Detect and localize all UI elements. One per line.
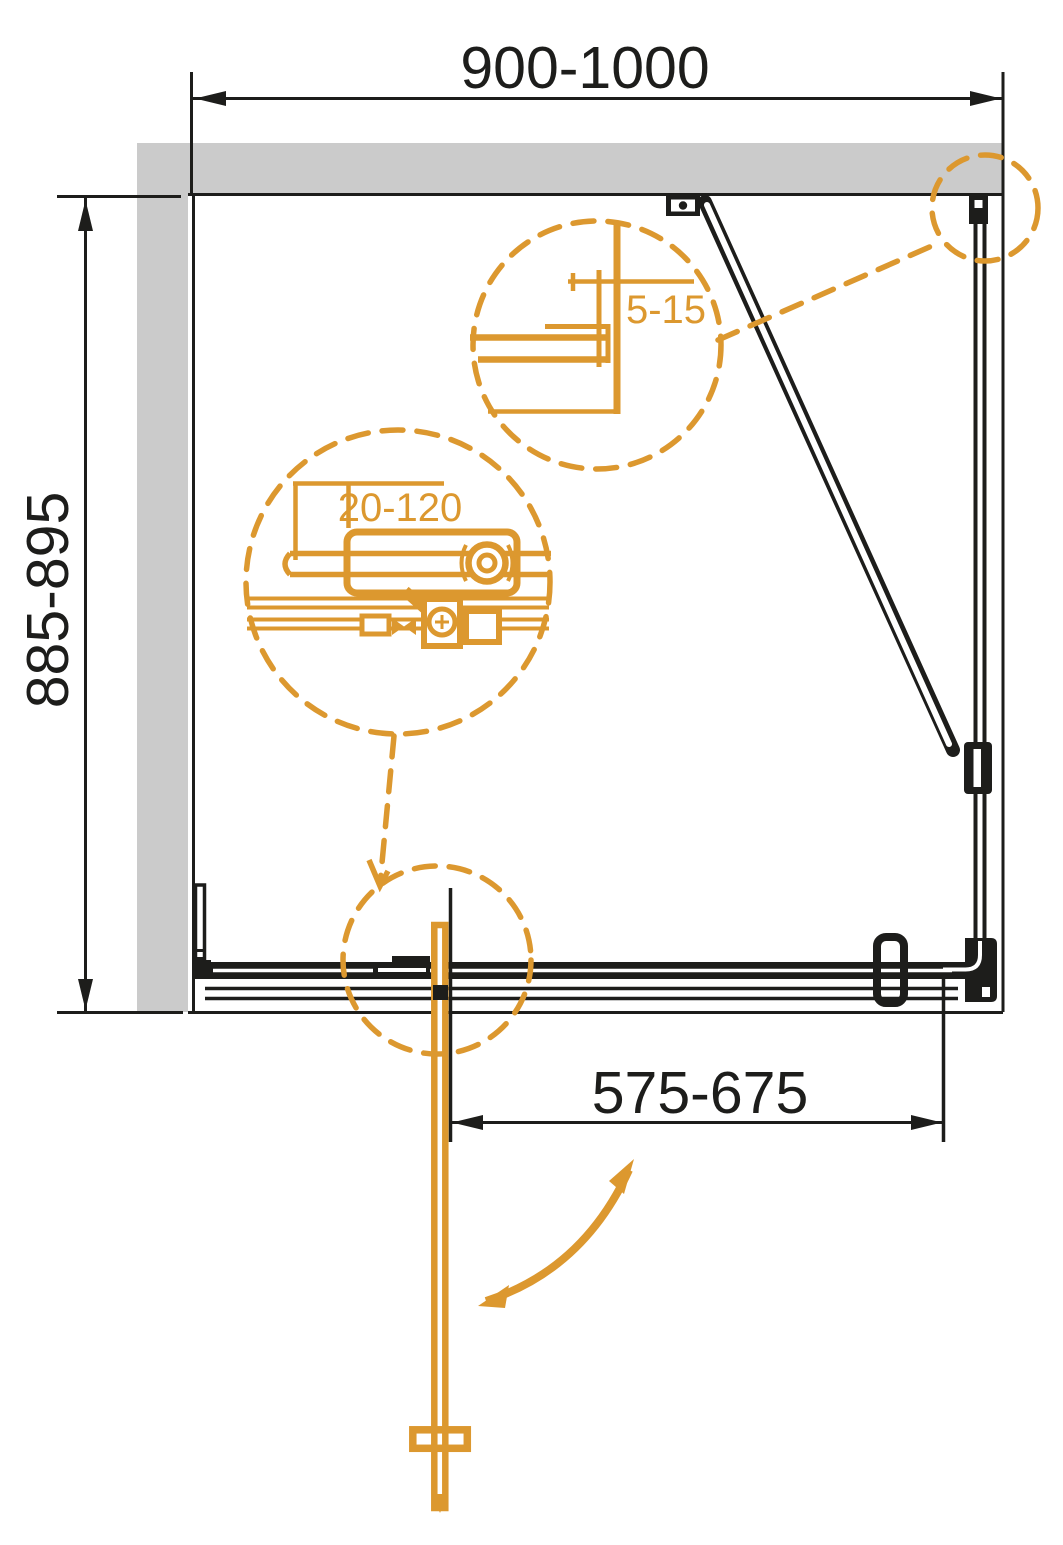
- pivot-bracket-main: [392, 956, 430, 978]
- arrowhead-bottom: [78, 979, 93, 1010]
- left-wall: [137, 143, 188, 1012]
- dimension-bottom-label: 575-675: [592, 1060, 809, 1126]
- arrowhead-right: [970, 91, 1001, 106]
- roller-wheel-hub: [479, 555, 495, 571]
- bottom-rail-lower-lines: [205, 989, 958, 999]
- door-orange-open: [413, 922, 634, 1513]
- detail-roller-mechanism: 20-120: [247, 483, 551, 646]
- pivot-foot-block: [433, 985, 448, 1000]
- door-swing-arc: [486, 1170, 629, 1301]
- top-wall: [137, 143, 1004, 193]
- detail-roller-label: 20-120: [338, 486, 463, 530]
- door-leaf: [434, 925, 445, 1508]
- enclosure-outline: [188, 72, 1004, 1013]
- detail-wall-profile-label: 5-15: [626, 288, 706, 332]
- end-block: [466, 611, 499, 642]
- door-pivot-hardware: [373, 956, 430, 978]
- door-glass-core: [707, 205, 949, 744]
- drawing-canvas: 900-1000 885-895: [0, 0, 1063, 1545]
- top-pivot-pin: [679, 201, 687, 209]
- adjuster-block: [362, 616, 389, 634]
- pivot-bracket-slot: [378, 968, 426, 972]
- arrowhead-right: [911, 1115, 942, 1130]
- fixed-glass-panel: [976, 222, 985, 945]
- dimension-bottom: 575-675: [451, 888, 944, 1142]
- rail-bar-cap: [285, 554, 290, 575]
- detail-wall-profile: 5-15: [470, 224, 706, 414]
- shower-enclosure-diagram: 900-1000 885-895: [0, 0, 1063, 1545]
- arrowhead-left: [195, 91, 226, 106]
- dimension-top-label: 900-1000: [460, 35, 709, 101]
- arrowhead-left: [452, 1115, 483, 1130]
- arrowhead-top: [78, 200, 93, 231]
- corner-connector-notch: [982, 987, 990, 997]
- swing-arrowhead-lower: [478, 1285, 509, 1308]
- hinge-block-slot: [974, 749, 982, 787]
- right-wall-profile-slot: [975, 200, 983, 208]
- leader-arrow-tick: [369, 860, 388, 886]
- leader-roller-to-pivot: [380, 736, 394, 884]
- door-diagonal-open: [666, 195, 953, 751]
- dimension-left-label: 885-895: [15, 492, 81, 709]
